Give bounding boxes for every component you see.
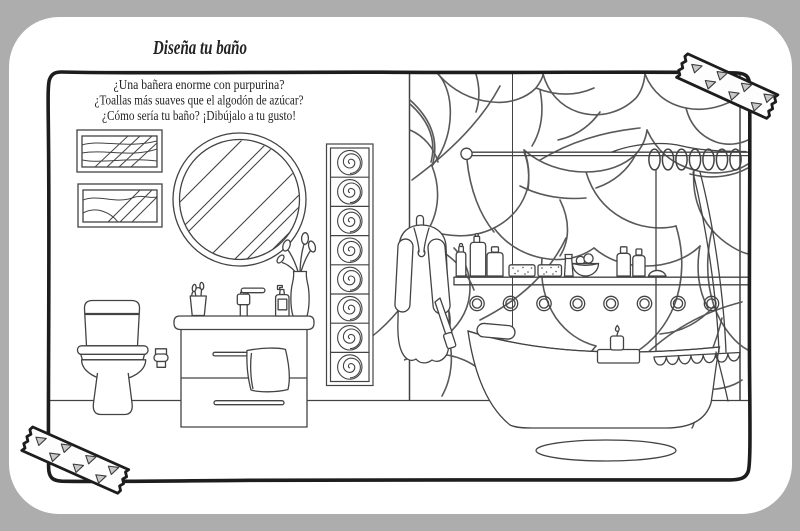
svg-text:Diseña tu baño: Diseña tu baño [152, 37, 247, 59]
svg-text:¿Toallas más suaves que el alg: ¿Toallas más suaves que el algodón de az… [95, 93, 304, 108]
svg-text:¿Una bañera enorme con purpuri: ¿Una bañera enorme con purpurina? [114, 77, 285, 92]
svg-text:¿Cómo sería tu baño? ¡Dibújalo: ¿Cómo sería tu baño? ¡Dibújalo a tu gust… [102, 108, 296, 123]
